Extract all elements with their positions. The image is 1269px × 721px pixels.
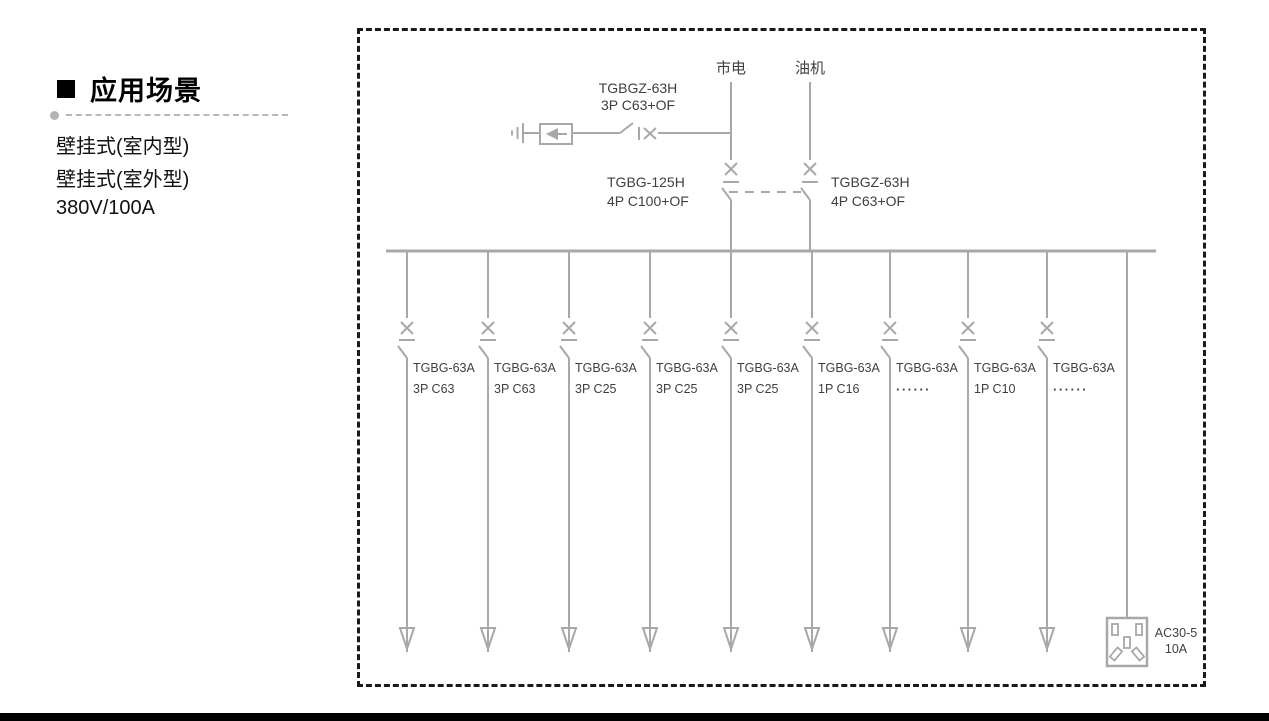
spd-breaker-label: TGBGZ-63H 3P C63+OF bbox=[566, 80, 710, 114]
application-scenario-panel: 应用场景 壁挂式(室内型) 壁挂式(室外型) 380V/100A bbox=[0, 0, 340, 400]
branch-spec: ······ bbox=[896, 382, 958, 397]
square-bullet-icon bbox=[57, 80, 75, 98]
socket-rating: 10A bbox=[1149, 641, 1203, 657]
branch-spec: 3P C63 bbox=[494, 382, 556, 397]
branch-model: TGBG-63A bbox=[656, 361, 718, 376]
branch-breaker-label: TGBG-63A ······ bbox=[896, 361, 958, 397]
generator-breaker-spec: 4P C63+OF bbox=[831, 192, 910, 211]
branch-model: TGBG-63A bbox=[1053, 361, 1115, 376]
branch-spec: 3P C25 bbox=[575, 382, 637, 397]
mains-source-label: 市电 bbox=[716, 57, 746, 78]
branch-breaker-label: TGBG-63A 3P C25 bbox=[737, 361, 799, 397]
scenario-item-indoor: 壁挂式(室内型) bbox=[56, 130, 189, 159]
main-breaker-spec: 4P C100+OF bbox=[607, 192, 689, 211]
branch-spec: ······ bbox=[1053, 382, 1115, 397]
dashed-divider bbox=[66, 114, 288, 116]
generator-source-label: 油机 bbox=[795, 57, 825, 78]
scenario-item-outdoor: 壁挂式(室外型) bbox=[56, 163, 189, 192]
branch-breaker-label: TGBG-63A 3P C63 bbox=[494, 361, 556, 397]
branch-model: TGBG-63A bbox=[974, 361, 1036, 376]
generator-breaker-model: TGBGZ-63H bbox=[831, 173, 910, 192]
branch-breaker-label: TGBG-63A 3P C25 bbox=[656, 361, 718, 397]
main-breaker-model: TGBG-125H bbox=[607, 173, 689, 192]
branch-breaker-label: TGBG-63A 3P C63 bbox=[413, 361, 475, 397]
branch-breaker-label: TGBG-63A 1P C16 bbox=[818, 361, 880, 397]
divider-dot bbox=[50, 111, 59, 120]
branch-model: TGBG-63A bbox=[413, 361, 475, 376]
socket-model: AC30-5 bbox=[1149, 625, 1203, 641]
section-heading: 应用场景 bbox=[57, 69, 202, 108]
branch-spec: 1P C10 bbox=[974, 382, 1036, 397]
page: 应用场景 壁挂式(室内型) 壁挂式(室外型) 380V/100A bbox=[0, 0, 1269, 721]
socket-label: AC30-5 10A bbox=[1149, 625, 1203, 657]
bottom-bar bbox=[0, 713, 1269, 721]
section-title: 应用场景 bbox=[90, 69, 202, 108]
scenario-item-rating: 380V/100A bbox=[56, 197, 155, 220]
spd-breaker-spec: 3P C63+OF bbox=[566, 97, 710, 114]
branch-model: TGBG-63A bbox=[896, 361, 958, 376]
branch-spec: 1P C16 bbox=[818, 382, 880, 397]
branch-breaker-label: TGBG-63A ······ bbox=[1053, 361, 1115, 397]
branch-model: TGBG-63A bbox=[494, 361, 556, 376]
branch-breaker-label: TGBG-63A 1P C10 bbox=[974, 361, 1036, 397]
branch-model: TGBG-63A bbox=[575, 361, 637, 376]
branch-spec: 3P C25 bbox=[737, 382, 799, 397]
branch-spec: 3P C63 bbox=[413, 382, 475, 397]
branch-model: TGBG-63A bbox=[737, 361, 799, 376]
diagram-frame bbox=[357, 28, 1206, 687]
generator-breaker-label: TGBGZ-63H 4P C63+OF bbox=[831, 173, 910, 211]
main-breaker-label: TGBG-125H 4P C100+OF bbox=[607, 173, 689, 211]
branch-spec: 3P C25 bbox=[656, 382, 718, 397]
spd-breaker-model: TGBGZ-63H bbox=[566, 80, 710, 97]
branch-model: TGBG-63A bbox=[818, 361, 880, 376]
branch-breaker-label: TGBG-63A 3P C25 bbox=[575, 361, 637, 397]
